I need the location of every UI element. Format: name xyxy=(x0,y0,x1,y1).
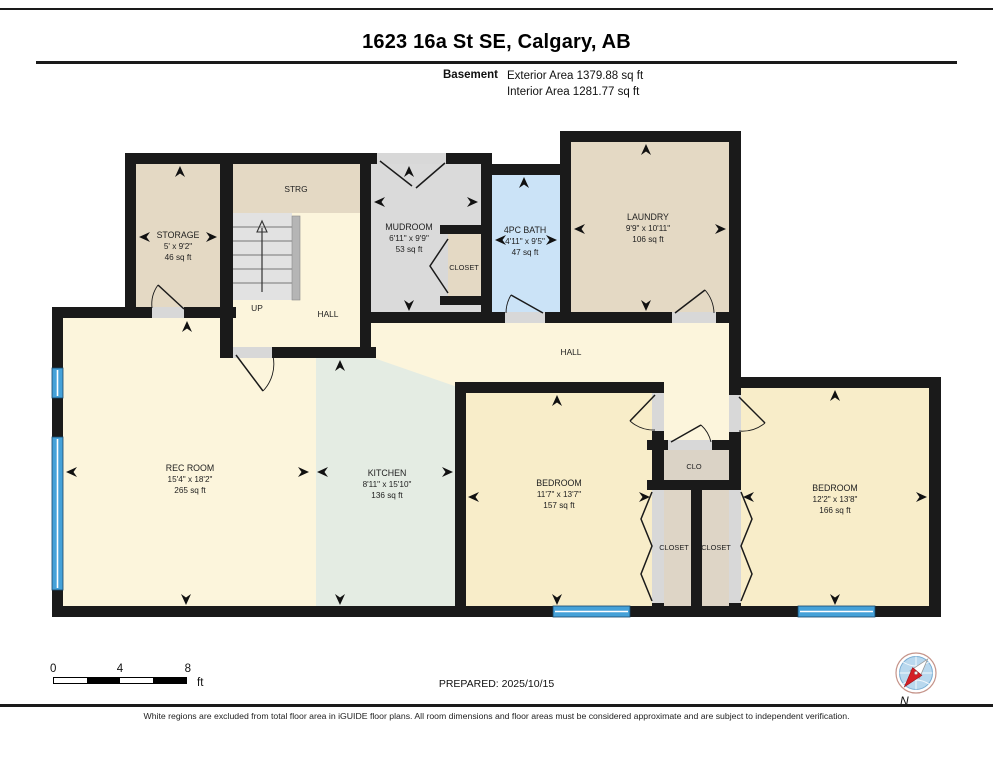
floor-plan-page: 1623 16a St SE, Calgary, AB Basement Ext… xyxy=(0,0,993,768)
room-label-bedroom-left: BEDROOM xyxy=(536,478,581,488)
door-threshold xyxy=(668,440,712,450)
room-label-bedroom-right: BEDROOM xyxy=(812,483,857,493)
wall-segment xyxy=(652,382,664,393)
disclaimer-text: White regions are excluded from total fl… xyxy=(0,711,993,721)
wall-segment xyxy=(652,603,664,617)
compass-icon xyxy=(890,650,942,710)
door-threshold xyxy=(652,393,664,431)
room-dims-bedroom-right: 12'2" x 13'8" xyxy=(813,495,858,504)
wall-segment xyxy=(560,131,571,323)
room-dims-bedroom-left: 11'7" x 13'7" xyxy=(537,490,581,499)
room-area-storage: 46 sq ft xyxy=(165,253,193,262)
wall-segment xyxy=(729,603,741,617)
room-dims-mudroom: 6'11" x 9'9" xyxy=(389,234,429,243)
room-area-bath: 47 sq ft xyxy=(512,248,540,257)
door-threshold xyxy=(729,490,741,603)
room-label-mudroom: MUDROOM xyxy=(385,222,432,232)
hall-main-label: HALL xyxy=(561,347,582,357)
room-dims-bath: 4'11" x 9'5" xyxy=(505,237,545,246)
footer-border-line xyxy=(0,704,993,707)
wall-segment xyxy=(455,382,664,393)
room-label-laundry: LAUNDRY xyxy=(627,212,669,222)
wall-segment xyxy=(220,153,233,358)
stair-handrail xyxy=(292,216,300,300)
room-label-mudroom-closet: CLOSET xyxy=(449,263,479,272)
wall-segment xyxy=(125,153,136,318)
wall-segment xyxy=(652,431,664,490)
wall-segment xyxy=(440,296,485,305)
door-threshold xyxy=(505,312,545,323)
scale-tick-0: 0 xyxy=(50,663,56,675)
stairs-up-label: UP xyxy=(251,303,263,313)
room-dims-laundry: 9'9" x 10'11" xyxy=(626,224,670,233)
room-area-bedroom-left: 157 sq ft xyxy=(543,501,575,510)
door-threshold xyxy=(729,395,741,432)
door-threshold xyxy=(672,312,716,323)
room-label-closet-left: CLOSET xyxy=(659,543,689,552)
wall-segment xyxy=(360,153,371,358)
scale-ticks: 0 4 8 xyxy=(53,663,187,677)
room-area-mudroom: 53 sq ft xyxy=(396,245,424,254)
wall-segment xyxy=(481,164,571,175)
wall-segment xyxy=(729,432,741,490)
floor-plan-drawing: STORAGE 5' x 9'2" 46 sq ft STRG MUDROOM … xyxy=(0,0,993,768)
wall-segment xyxy=(560,131,741,142)
door-threshold xyxy=(152,307,184,318)
room-dims-kitchen: 8'11" x 15'10" xyxy=(363,480,412,489)
scale-tick-4: 4 xyxy=(117,663,123,675)
wall-segment xyxy=(729,131,741,395)
scale-tick-8: 8 xyxy=(185,663,191,675)
door-threshold xyxy=(377,153,446,164)
room-label-rec: REC ROOM xyxy=(166,463,214,473)
room-label-storage: STORAGE xyxy=(157,230,200,240)
room-label-kitchen: KITCHEN xyxy=(368,468,407,478)
room-area-bedroom-right: 166 sq ft xyxy=(819,506,851,515)
wall-segment xyxy=(729,377,941,388)
wall-segment xyxy=(125,153,377,164)
room-label-bath: 4PC BATH xyxy=(504,225,546,235)
room-dims-storage: 5' x 9'2" xyxy=(164,242,192,251)
prepared-date-label: PREPARED: 2025/10/15 xyxy=(0,678,993,690)
room-area-kitchen: 136 sq ft xyxy=(371,491,403,500)
compass: N xyxy=(890,650,942,710)
door-threshold xyxy=(233,347,272,358)
hall-upper-label: HALL xyxy=(318,309,339,319)
wall-segment xyxy=(52,307,152,318)
room-area-rec: 265 sq ft xyxy=(174,486,206,495)
room-bedroom-left-floor xyxy=(466,393,652,606)
room-dims-rec: 15'4" x 18'2" xyxy=(168,475,213,484)
wall-segment xyxy=(455,382,466,617)
room-label-closet-right: CLOSET xyxy=(701,543,731,552)
room-label-clo: CLO xyxy=(686,462,701,471)
room-area-laundry: 106 sq ft xyxy=(632,235,664,244)
wall-segment xyxy=(481,153,492,323)
wall-segment xyxy=(440,225,485,234)
wall-segment xyxy=(929,377,941,617)
room-label-strg: STRG xyxy=(284,184,307,194)
